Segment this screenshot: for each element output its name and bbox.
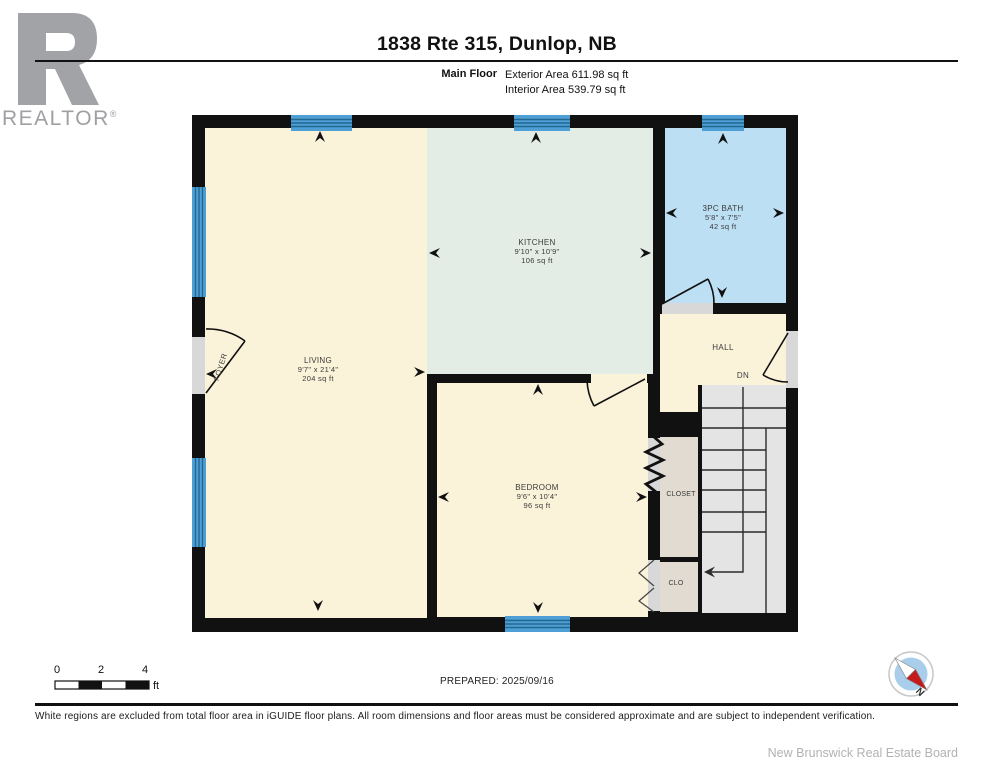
realtor-brand: REALTOR — [2, 107, 110, 130]
registered-mark: ® — [110, 109, 118, 119]
scale-tick-2: 2 — [95, 664, 107, 676]
bedroom-name: BEDROOM — [477, 483, 597, 492]
hall-notch — [660, 385, 698, 412]
stairs-floor — [702, 385, 786, 613]
bath-opening — [662, 303, 713, 314]
living-dims: 9'7" x 21'4" — [258, 365, 378, 374]
scale-tick-4: 4 — [139, 664, 151, 676]
bedroom-dims: 9'6" x 10'4" — [477, 492, 597, 501]
kitchen-label: KITCHEN 9'10" x 10'9" 106 sq ft — [477, 238, 597, 265]
interior-area: Interior Area 539.79 sq ft — [505, 83, 628, 98]
window-top-kitchen — [514, 115, 570, 131]
clo-label: CLO — [656, 580, 696, 587]
footer-rule — [35, 703, 958, 706]
compass-icon — [889, 652, 933, 696]
living-name: LIVING — [258, 356, 378, 365]
hall-opening — [786, 331, 798, 388]
realtor-logo-icon — [18, 13, 99, 105]
stairs-dn-label: DN — [723, 371, 763, 380]
bath-label: 3PC BATH 5'8" x 7'5" 42 sq ft — [663, 204, 783, 231]
header-rule — [35, 60, 958, 62]
bath-name: 3PC BATH — [663, 204, 783, 213]
living-label: LIVING 9'7" x 21'4" 204 sq ft — [258, 356, 378, 383]
kitchen-dims: 9'10" x 10'9" — [477, 247, 597, 256]
kitchen-name: KITCHEN — [477, 238, 597, 247]
window-top-bath — [702, 115, 744, 131]
window-left-upper — [192, 187, 206, 297]
bedroom-label: BEDROOM 9'6" x 10'4" 96 sq ft — [477, 483, 597, 510]
realtor-wordmark: REALTOR® — [2, 107, 118, 131]
closet-label: CLOSET — [651, 491, 711, 498]
hall-label: HALL — [683, 343, 763, 352]
floorplan-graphic — [0, 0, 994, 768]
prepared-date: PREPARED: 2025/09/16 — [0, 676, 994, 687]
exterior-area: Exterior Area 611.98 sq ft — [505, 68, 628, 83]
page-title: 1838 Rte 315, Dunlop, NB — [0, 33, 994, 56]
window-left-lower — [192, 458, 206, 547]
floor-label: Main Floor — [380, 68, 497, 80]
bath-area: 42 sq ft — [663, 222, 783, 231]
area-summary: Exterior Area 611.98 sq ft Interior Area… — [505, 68, 628, 98]
kitchen-area: 106 sq ft — [477, 256, 597, 265]
board-credit: New Brunswick Real Estate Board — [600, 746, 958, 760]
clo-floor — [660, 562, 698, 612]
window-bottom-bedroom — [505, 616, 570, 632]
floorplan-page: REALTOR® 1838 Rte 315, Dunlop, NB Main F… — [0, 0, 994, 768]
bath-dims: 5'8" x 7'5" — [663, 213, 783, 222]
bedroom-area: 96 sq ft — [477, 501, 597, 510]
scale-tick-0: 0 — [51, 664, 63, 676]
living-area: 204 sq ft — [258, 374, 378, 383]
window-top-living — [291, 115, 352, 131]
disclaimer-text: White regions are excluded from total fl… — [35, 711, 920, 722]
foyer-opening — [192, 337, 205, 394]
